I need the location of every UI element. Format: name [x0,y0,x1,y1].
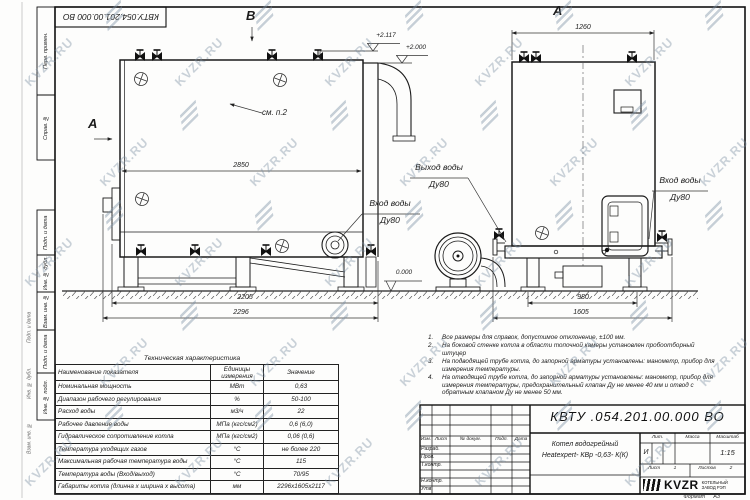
table-row: Температура воды (Вход/выход)°С70/95 [56,468,339,481]
frame-label-inv-podl: Инв. № подл. [37,373,55,420]
tb-sheets-value: 2 [724,467,738,472]
titleblock-row-label: Т.контр. [421,463,442,468]
table-row: Номинальная мощностьМВт0,63 [56,381,339,394]
valve-icon [136,50,145,60]
table-row: Диапазон рабочего регулирования%50-100 [56,393,339,406]
top-stamp-doc-number: КВТУ.054.201.00.000 ВО [63,12,159,22]
frame-outer-label: Подп. и дата [23,300,36,355]
tb-scale-value: 1:15 [710,449,745,457]
kvzr-logo-subtext: КОТЕЛЬНЫЙ ЗАВОД РЭП [702,480,728,490]
notes-list: 1.Все размеры для справок, допустимое от… [428,334,716,397]
frame-label-inv-dubl: Инв. № дубл. [37,255,55,292]
boiler-left-view [103,50,415,291]
tb-lit-label: Лит. [640,436,675,441]
product-name-line1: Котел водогрейный [532,440,638,451]
section-mark-a-right: А [553,4,562,17]
kvzr-logo-text: KVZR [664,478,699,492]
frame-label-perv-primen: Перв. примен. [37,7,55,95]
frame-label-podp-data2: Подп. и дата [37,330,55,373]
flue-elbow [378,63,415,141]
valve-icon [191,245,200,255]
valve-icon [658,231,667,241]
tb-scale-label: Масштаб [710,436,745,441]
elevation-top: +2.117 [366,33,406,40]
note-item: 3.На подводящей трубе котла, до запорной… [428,358,716,373]
table-row: Гидравлическое сопротивление котлаМПа (к… [56,431,339,444]
drawing-sheet: КВТУ.054.201.00.000 ВО Перв. примен. Спр… [0,0,750,500]
titleblock-row-label: Н.контр. [421,479,443,484]
valve-icon [262,245,271,255]
table-row: Расход водым3/ч22 [56,406,339,419]
water-outlet-label: Выход воды [407,163,471,172]
boiler-right-view [493,45,672,291]
product-name-line2: Heatexpert- КВр -0,63- К(К) [532,451,638,462]
elevation-duct: +2.000 [396,45,436,52]
top-stamp: КВТУ.054.201.00.000 ВО [55,7,166,27]
dim-2205: 2205 [220,294,270,301]
see-note-label: см. п.2 [262,109,287,117]
tb-sheets-label: Листов [692,467,722,472]
water-outlet-dn: Ду80 [407,180,471,189]
tech-header-name: Наименование показателя [56,365,211,381]
water-inlet-right-label: Вход воды [650,176,710,185]
frame-label-podp-data: Подп. и дата [37,210,55,255]
tech-table-body: Номинальная мощностьМВт0,63Диапазон рабо… [56,381,339,494]
note-item: 1.Все размеры для справок, допустимое от… [428,334,716,341]
valve-icon [268,50,277,60]
titleblock-row-label: Разраб. [421,447,440,452]
frame-outer-label: Взам. инв. № [23,412,36,464]
tb-sheet-label: Лист [642,467,666,472]
note-item: 2.На боковой стенке котла в области топо… [428,342,716,357]
dim-980: 980 [558,294,608,301]
dim-2296: 2296 [216,309,266,316]
furnace-door [602,196,648,256]
tech-characteristics: Техническая характеристика Наименование … [55,355,329,494]
valve-icon [314,50,323,60]
titleblock-doc-number: КВТУ .054.201.00.000 ВО [530,409,745,424]
format-note: Формат А3 [600,494,720,500]
tb-lit-value: И [640,449,652,456]
table-row: Габариты котла (длинна х ширина х высота… [56,481,339,494]
titleblock-row-label: Утв. [421,487,433,492]
valve-icon [137,245,146,255]
valve-icon [628,52,637,62]
tb-col-podp: Подп. [491,438,512,443]
titleblock-row-label: Пров. [421,455,435,460]
table-row: Максимальная рабочая температура воды°С1… [56,456,339,469]
section-mark-a-left: А [88,117,97,130]
tech-table-title: Техническая характеристика [55,355,329,362]
tech-header-value: Значение [264,365,339,381]
kvzr-logo: KVZR КОТЕЛЬНЫЙ ЗАВОД РЭП [643,478,743,492]
note-item: 4.На отводящей трубе котла, до запорной … [428,374,716,396]
table-row: Рабочее давление водыМПа (кгс/см2)0,6 (6… [56,418,339,431]
format-label: Формат [683,494,705,500]
water-inlet-right-dn: Ду80 [650,193,710,202]
tb-col-data: Дата [512,438,530,443]
elevation-ground: 0.000 [384,270,424,277]
tech-header-units: Единицы измерения [211,365,264,381]
frame-outer-label: Инв. № дубл. [23,358,36,408]
tb-mass-label: Масса [675,436,710,441]
titleblock-product-name: Котел водогрейный Heatexpert- КВр -0,63-… [532,440,638,461]
valve-icon [520,52,529,62]
valve-icon [367,245,376,255]
inlet-flange [322,232,348,258]
dim-1260: 1260 [558,24,608,31]
datum-marks [133,71,551,255]
frame-label-sprav-n: Справ. № [37,95,55,160]
tb-row-labels: Разраб.Пров.Т.контр.Н.контр.Утв. [421,405,451,494]
section-mark-b-top: В [246,9,255,22]
valve-icon [153,50,162,60]
water-inlet-left-label: Вход воды [360,199,420,208]
water-inlet-left-dn: Ду80 [360,216,420,225]
tb-col-doc: № докум. [450,438,491,443]
tb-sheet-value: 1 [668,467,682,472]
format-value: А3 [713,494,720,500]
valve-icon [532,52,541,62]
blower-fan [435,233,505,291]
frame-label-vzam-inv: Взам. инв. № [37,292,55,330]
kvzr-logo-icon [643,479,661,491]
tech-table: Наименование показателя Единицы измерени… [55,364,339,494]
dim-2850: 2850 [216,162,266,169]
dim-1605: 1605 [556,309,606,316]
table-row: Температура уходящих газов°Сне более 220 [56,443,339,456]
